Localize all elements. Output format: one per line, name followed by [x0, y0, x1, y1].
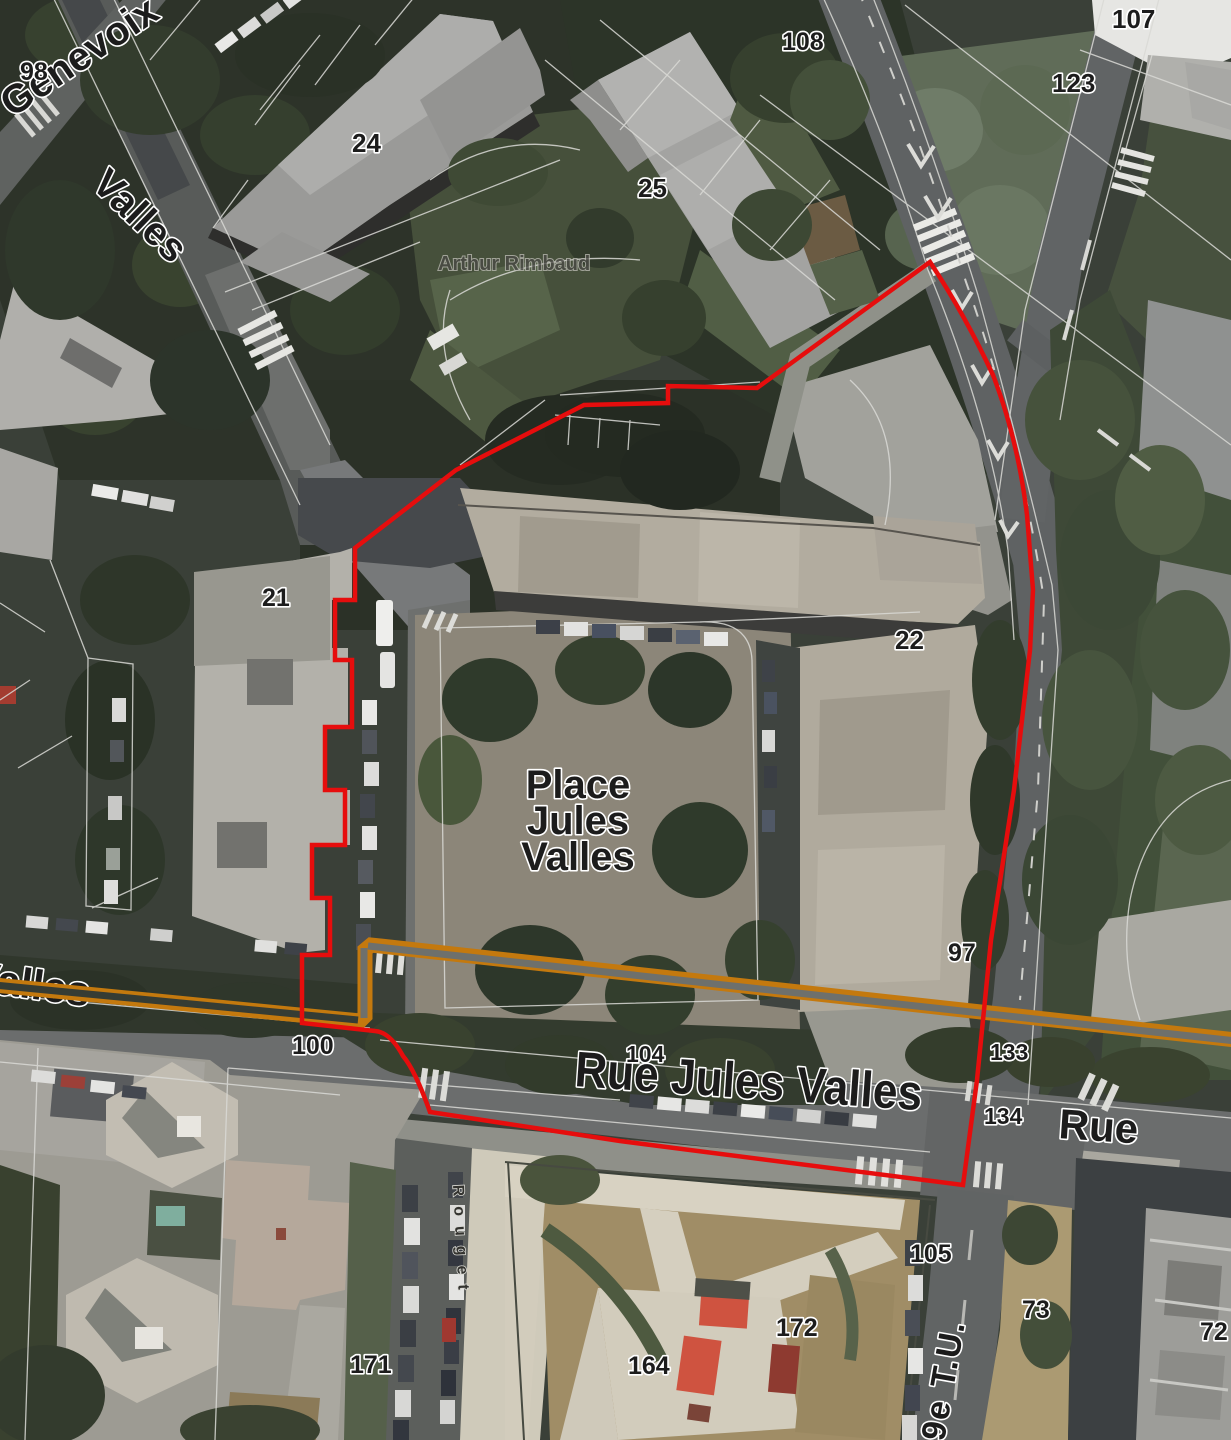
- svg-text:104: 104: [626, 1041, 665, 1067]
- svg-text:73: 73: [1022, 1296, 1050, 1324]
- svg-text:97: 97: [948, 939, 976, 967]
- svg-text:105: 105: [910, 1240, 952, 1268]
- svg-text:24: 24: [352, 128, 381, 158]
- svg-text:98: 98: [20, 58, 48, 86]
- svg-text:72: 72: [1200, 1318, 1228, 1346]
- svg-text:133: 133: [990, 1039, 1028, 1065]
- svg-text:21: 21: [262, 584, 290, 612]
- svg-text:172: 172: [776, 1314, 818, 1342]
- svg-text:107: 107: [1112, 4, 1155, 34]
- svg-text:Rue: Rue: [1057, 1100, 1139, 1152]
- svg-text:Arthur Rimbaud: Arthur Rimbaud: [438, 253, 590, 275]
- svg-text:164: 164: [628, 1352, 670, 1380]
- svg-text:123: 123: [1052, 68, 1095, 98]
- svg-text:108: 108: [782, 28, 824, 56]
- svg-text:Valles: Valles: [521, 835, 634, 879]
- svg-text:25: 25: [638, 173, 667, 203]
- svg-text:134: 134: [984, 1103, 1023, 1129]
- svg-text:22: 22: [895, 625, 924, 655]
- svg-text:100: 100: [292, 1032, 334, 1060]
- svg-text:171: 171: [350, 1351, 392, 1379]
